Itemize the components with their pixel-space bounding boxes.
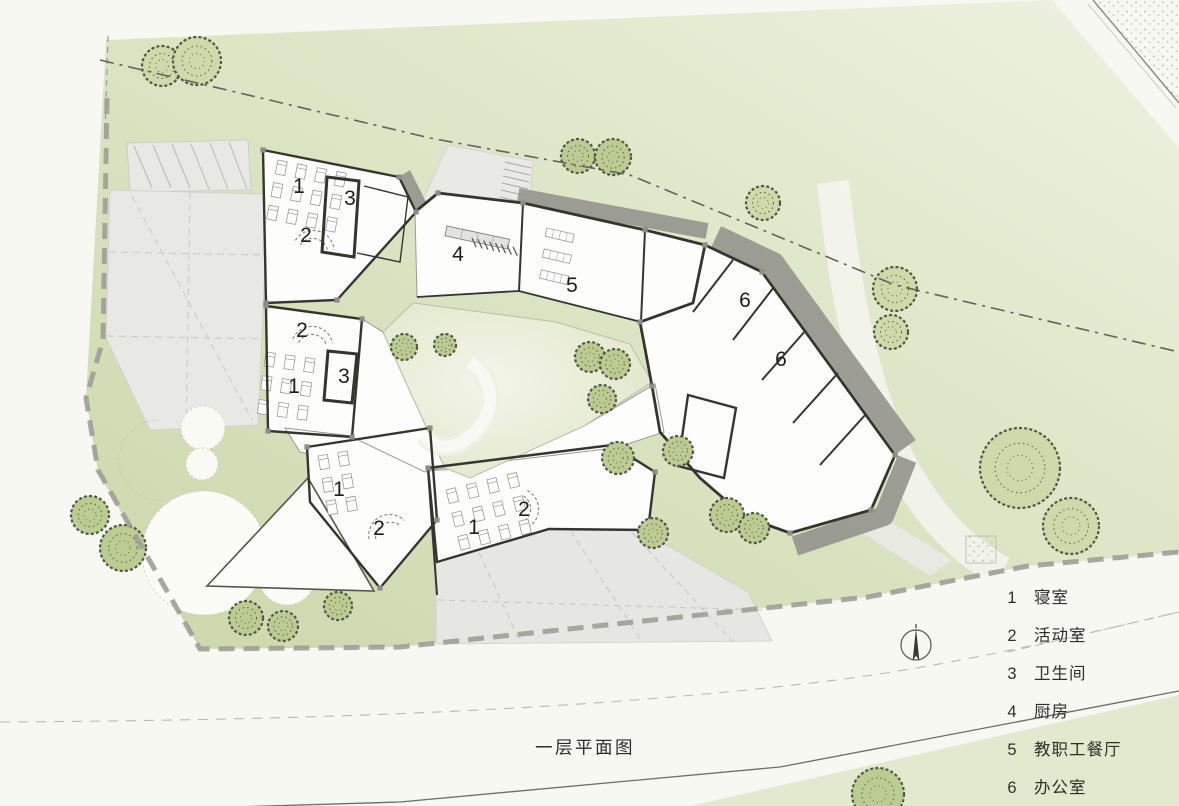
- tree-icon: [229, 601, 263, 635]
- legend-item-number: 3: [1004, 665, 1020, 684]
- wall-pier: [425, 465, 430, 470]
- legend-item: 1寝室: [1004, 584, 1174, 608]
- tree-icon: [324, 592, 352, 620]
- wall-pier: [649, 383, 654, 388]
- wall-pier: [265, 428, 270, 433]
- wall-pier: [349, 434, 354, 439]
- wall-pier: [787, 530, 792, 535]
- tree-icon: [268, 611, 298, 641]
- wall-pier: [868, 507, 873, 512]
- wall-pier: [637, 319, 642, 324]
- legend-item-label: 教职工餐厅: [1034, 736, 1122, 760]
- floor-plan-screenshot: 13245662311212 1寝室2活动室3卫生间4厨房5教职工餐厅6办公室 …: [0, 0, 1179, 806]
- tree-icon: [600, 349, 630, 379]
- wall-pier: [263, 303, 268, 308]
- legend-item-label: 寝室: [1034, 584, 1069, 608]
- legend: 1寝室2活动室3卫生间4厨房5教职工餐厅6办公室: [1004, 584, 1174, 806]
- wall-pier: [642, 227, 647, 232]
- tree-icon: [71, 496, 109, 534]
- wall-pier: [652, 469, 657, 474]
- wall-pier: [520, 200, 525, 205]
- wall-pier: [435, 190, 440, 195]
- tree-icon: [746, 186, 780, 220]
- legend-item-number: 1: [1004, 589, 1020, 608]
- wall-pier: [892, 452, 897, 457]
- tree-icon: [874, 315, 908, 349]
- wall-pier: [434, 517, 439, 522]
- legend-item: 4厨房: [1004, 698, 1174, 722]
- legend-item: 2活动室: [1004, 622, 1174, 646]
- tree-icon: [588, 385, 616, 413]
- legend-item-label: 卫生间: [1034, 660, 1087, 684]
- legend-item-label: 活动室: [1034, 622, 1087, 646]
- tree-icon: [100, 525, 146, 571]
- tree-icon: [391, 334, 417, 360]
- tree-icon: [663, 436, 693, 466]
- legend-item: 6办公室: [1004, 774, 1174, 798]
- tree-icon: [595, 139, 631, 175]
- wall-pier: [359, 316, 364, 321]
- legend-item-number: 6: [1004, 779, 1020, 798]
- legend-item: 3卫生间: [1004, 660, 1174, 684]
- tree-icon: [434, 334, 456, 356]
- tree-icon: [638, 518, 668, 548]
- tree-icon: [980, 428, 1060, 508]
- tree-icon: [739, 513, 769, 543]
- wall-pier: [334, 297, 339, 302]
- wall-pier: [377, 585, 382, 590]
- legend-item-number: 2: [1004, 627, 1020, 646]
- wall-pier: [396, 174, 401, 179]
- legend-item: 5教职工餐厅: [1004, 736, 1174, 760]
- wall-pier: [304, 444, 309, 449]
- tree-icon: [602, 442, 634, 474]
- wall-pier: [427, 425, 432, 430]
- wall-pier: [413, 209, 418, 214]
- wall-pier: [702, 242, 707, 247]
- utility-pad: [966, 536, 996, 563]
- legend-item-number: 4: [1004, 703, 1020, 722]
- plan-caption: 一层平面图: [535, 735, 635, 760]
- legend-item-number: 5: [1004, 741, 1020, 760]
- site-plan-canvas: [0, 0, 1179, 806]
- wall-pier: [260, 147, 265, 152]
- tree-icon: [173, 37, 221, 85]
- legend-item-label: 厨房: [1034, 698, 1069, 722]
- tree-icon: [1043, 498, 1099, 554]
- wall-pier: [759, 269, 764, 274]
- legend-item-label: 办公室: [1034, 774, 1087, 798]
